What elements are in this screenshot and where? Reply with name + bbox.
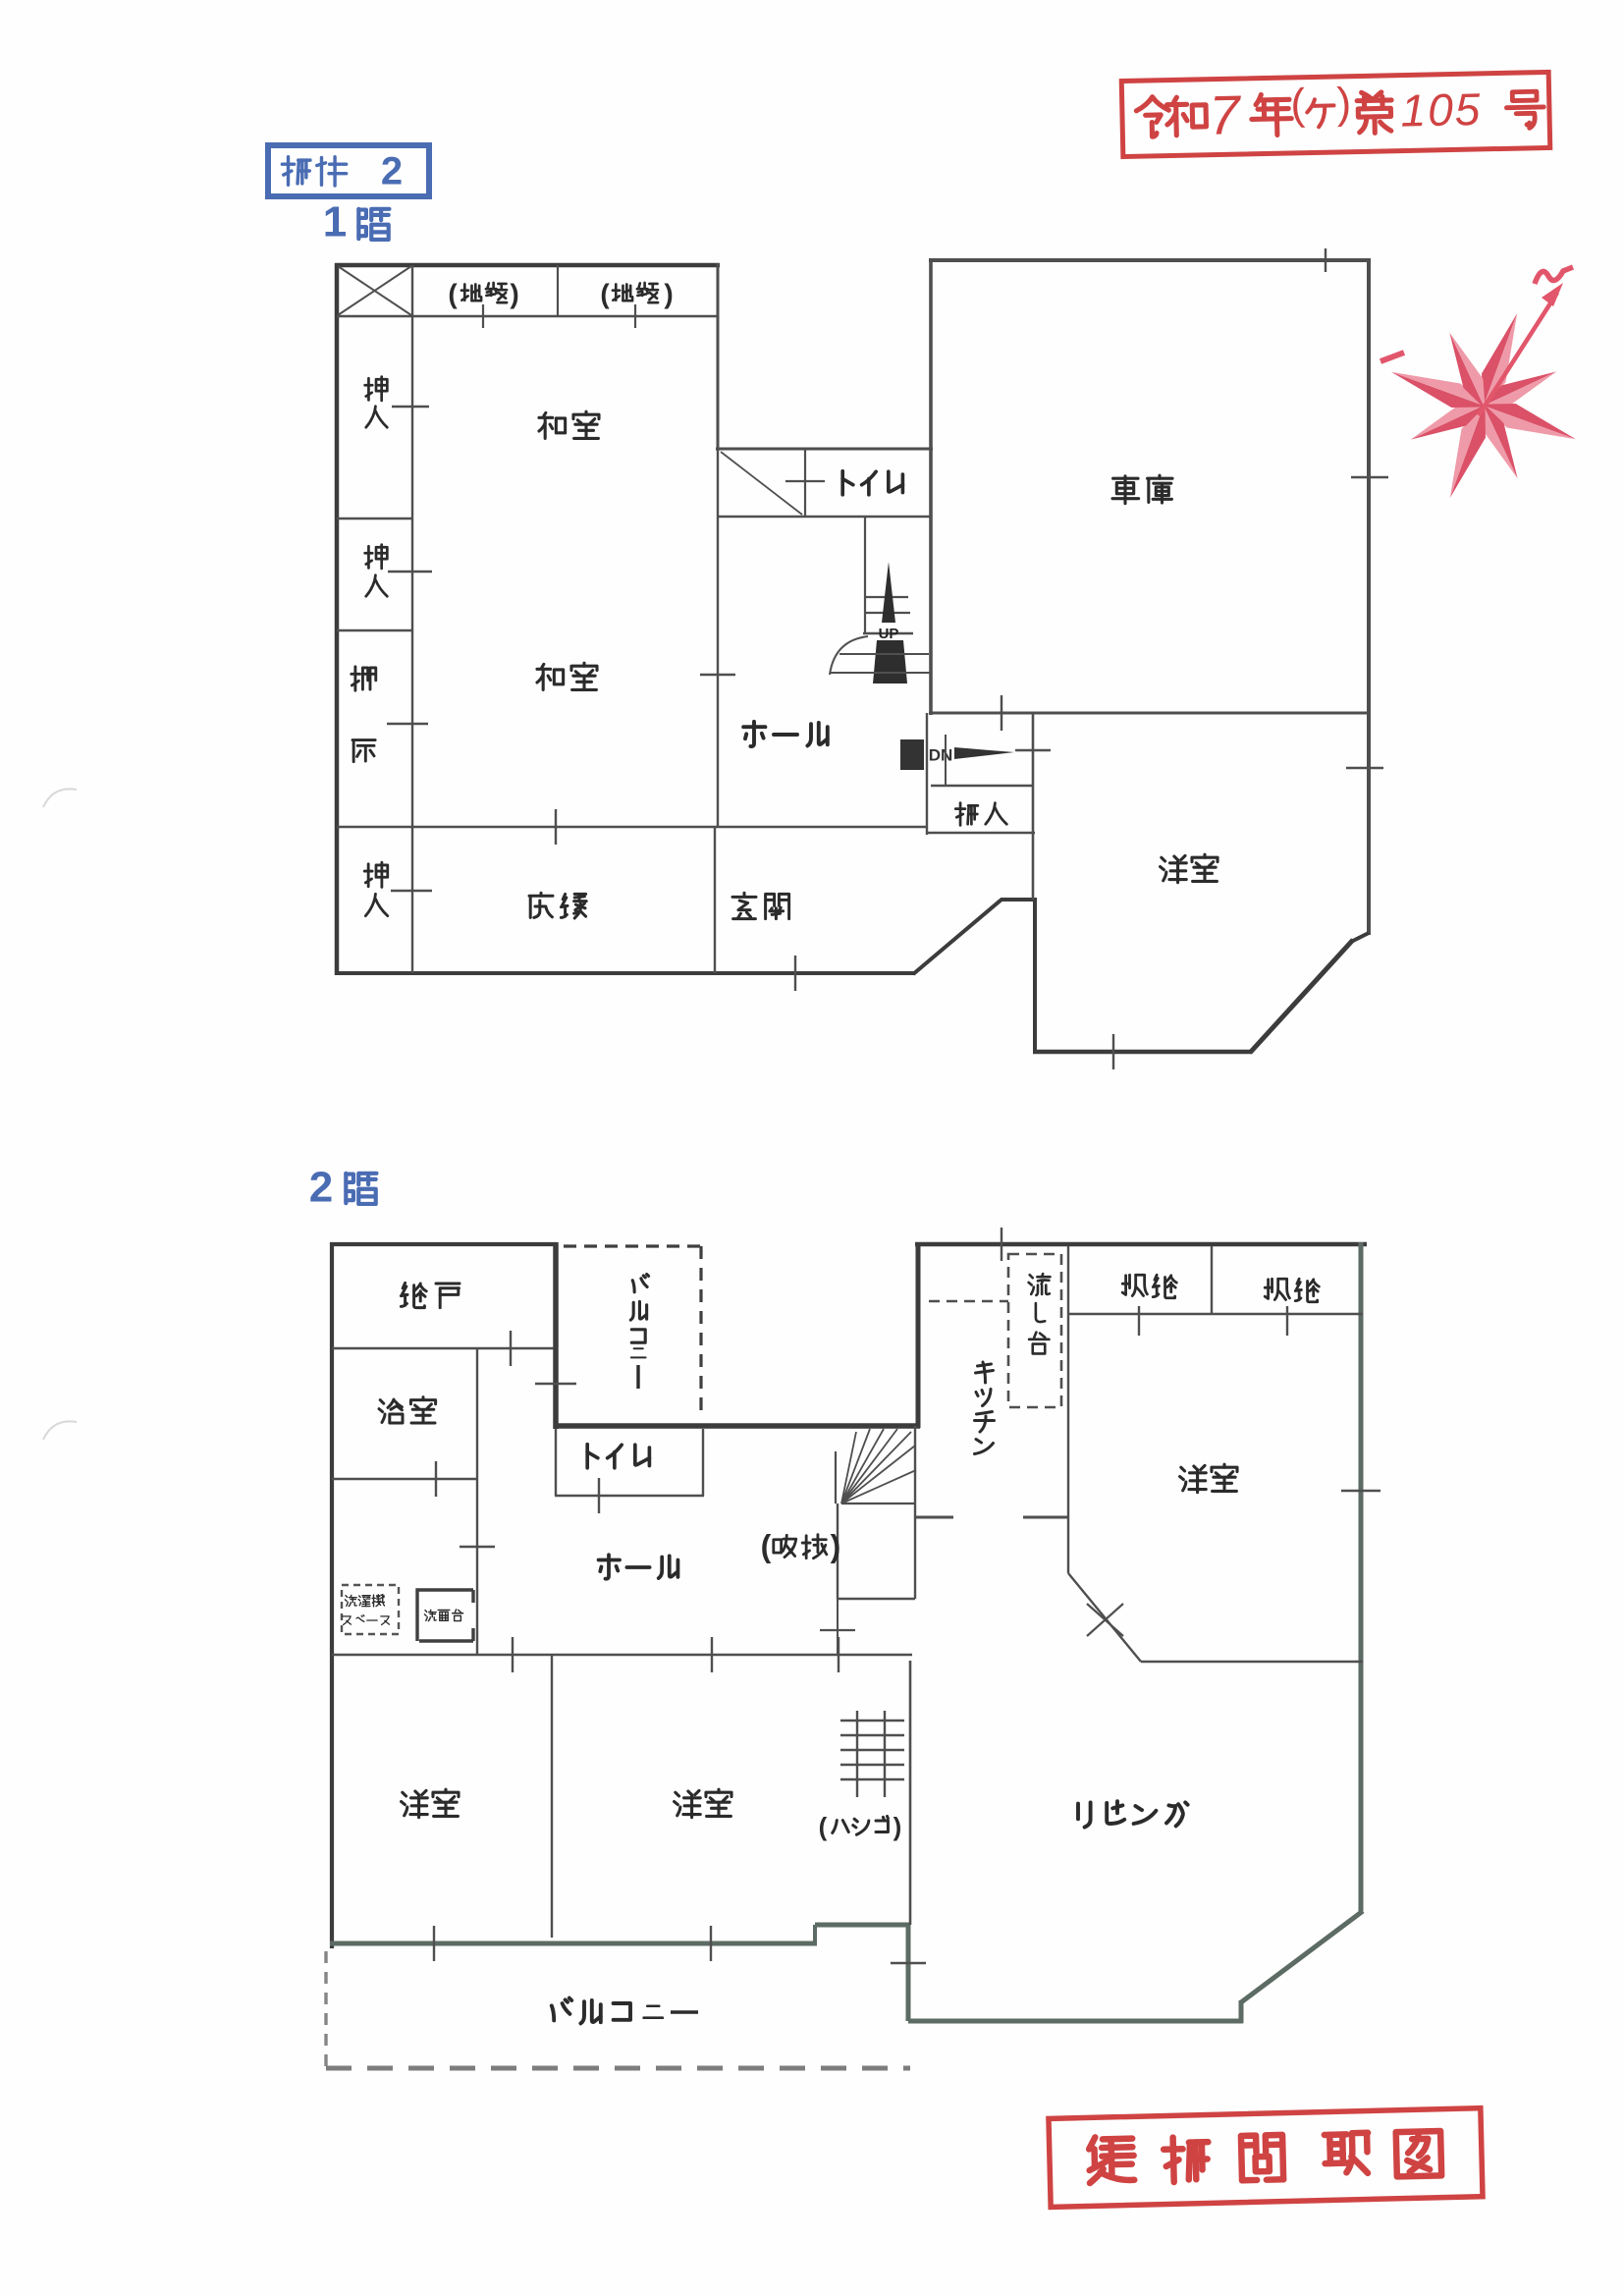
svg-text:105: 105 (1400, 83, 1483, 137)
svg-text:(: ( (448, 278, 458, 308)
svg-text:UP: UP (879, 626, 899, 642)
svg-text:2: 2 (309, 1164, 333, 1212)
svg-text:(: ( (761, 1528, 772, 1563)
svg-text:7: 7 (1209, 83, 1242, 146)
svg-text:(: ( (1290, 81, 1306, 129)
svg-text:): ) (831, 1528, 841, 1563)
svg-text:): ) (893, 1812, 902, 1841)
svg-text:): ) (510, 278, 518, 308)
svg-text:(: ( (600, 278, 610, 308)
svg-text:): ) (1336, 80, 1352, 128)
svg-text:1: 1 (323, 198, 347, 246)
svg-text:DN: DN (929, 745, 953, 764)
svg-text:2: 2 (381, 150, 403, 193)
svg-text:): ) (664, 278, 673, 308)
svg-text:(: ( (819, 1812, 828, 1841)
